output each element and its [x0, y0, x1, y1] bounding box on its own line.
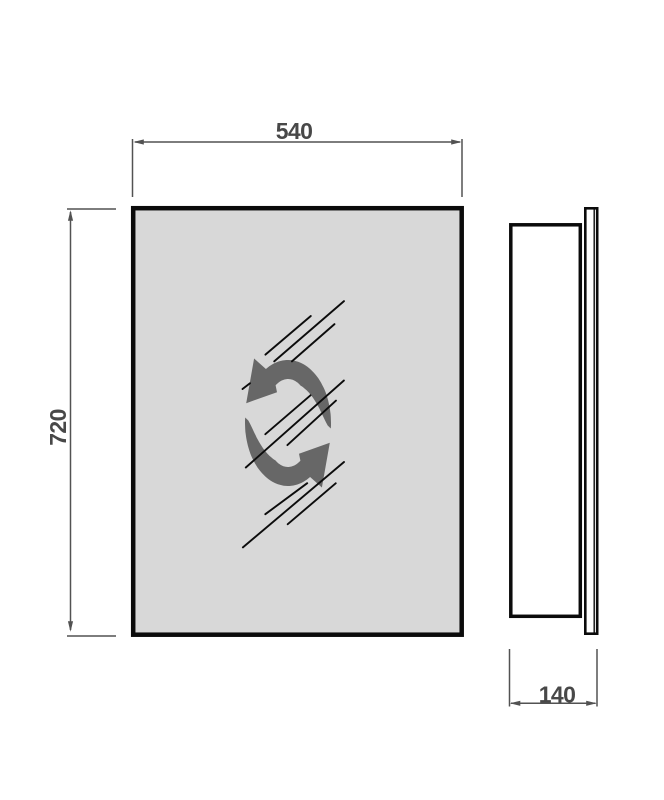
- svg-text:720: 720: [45, 409, 71, 446]
- svg-text:540: 540: [276, 118, 313, 144]
